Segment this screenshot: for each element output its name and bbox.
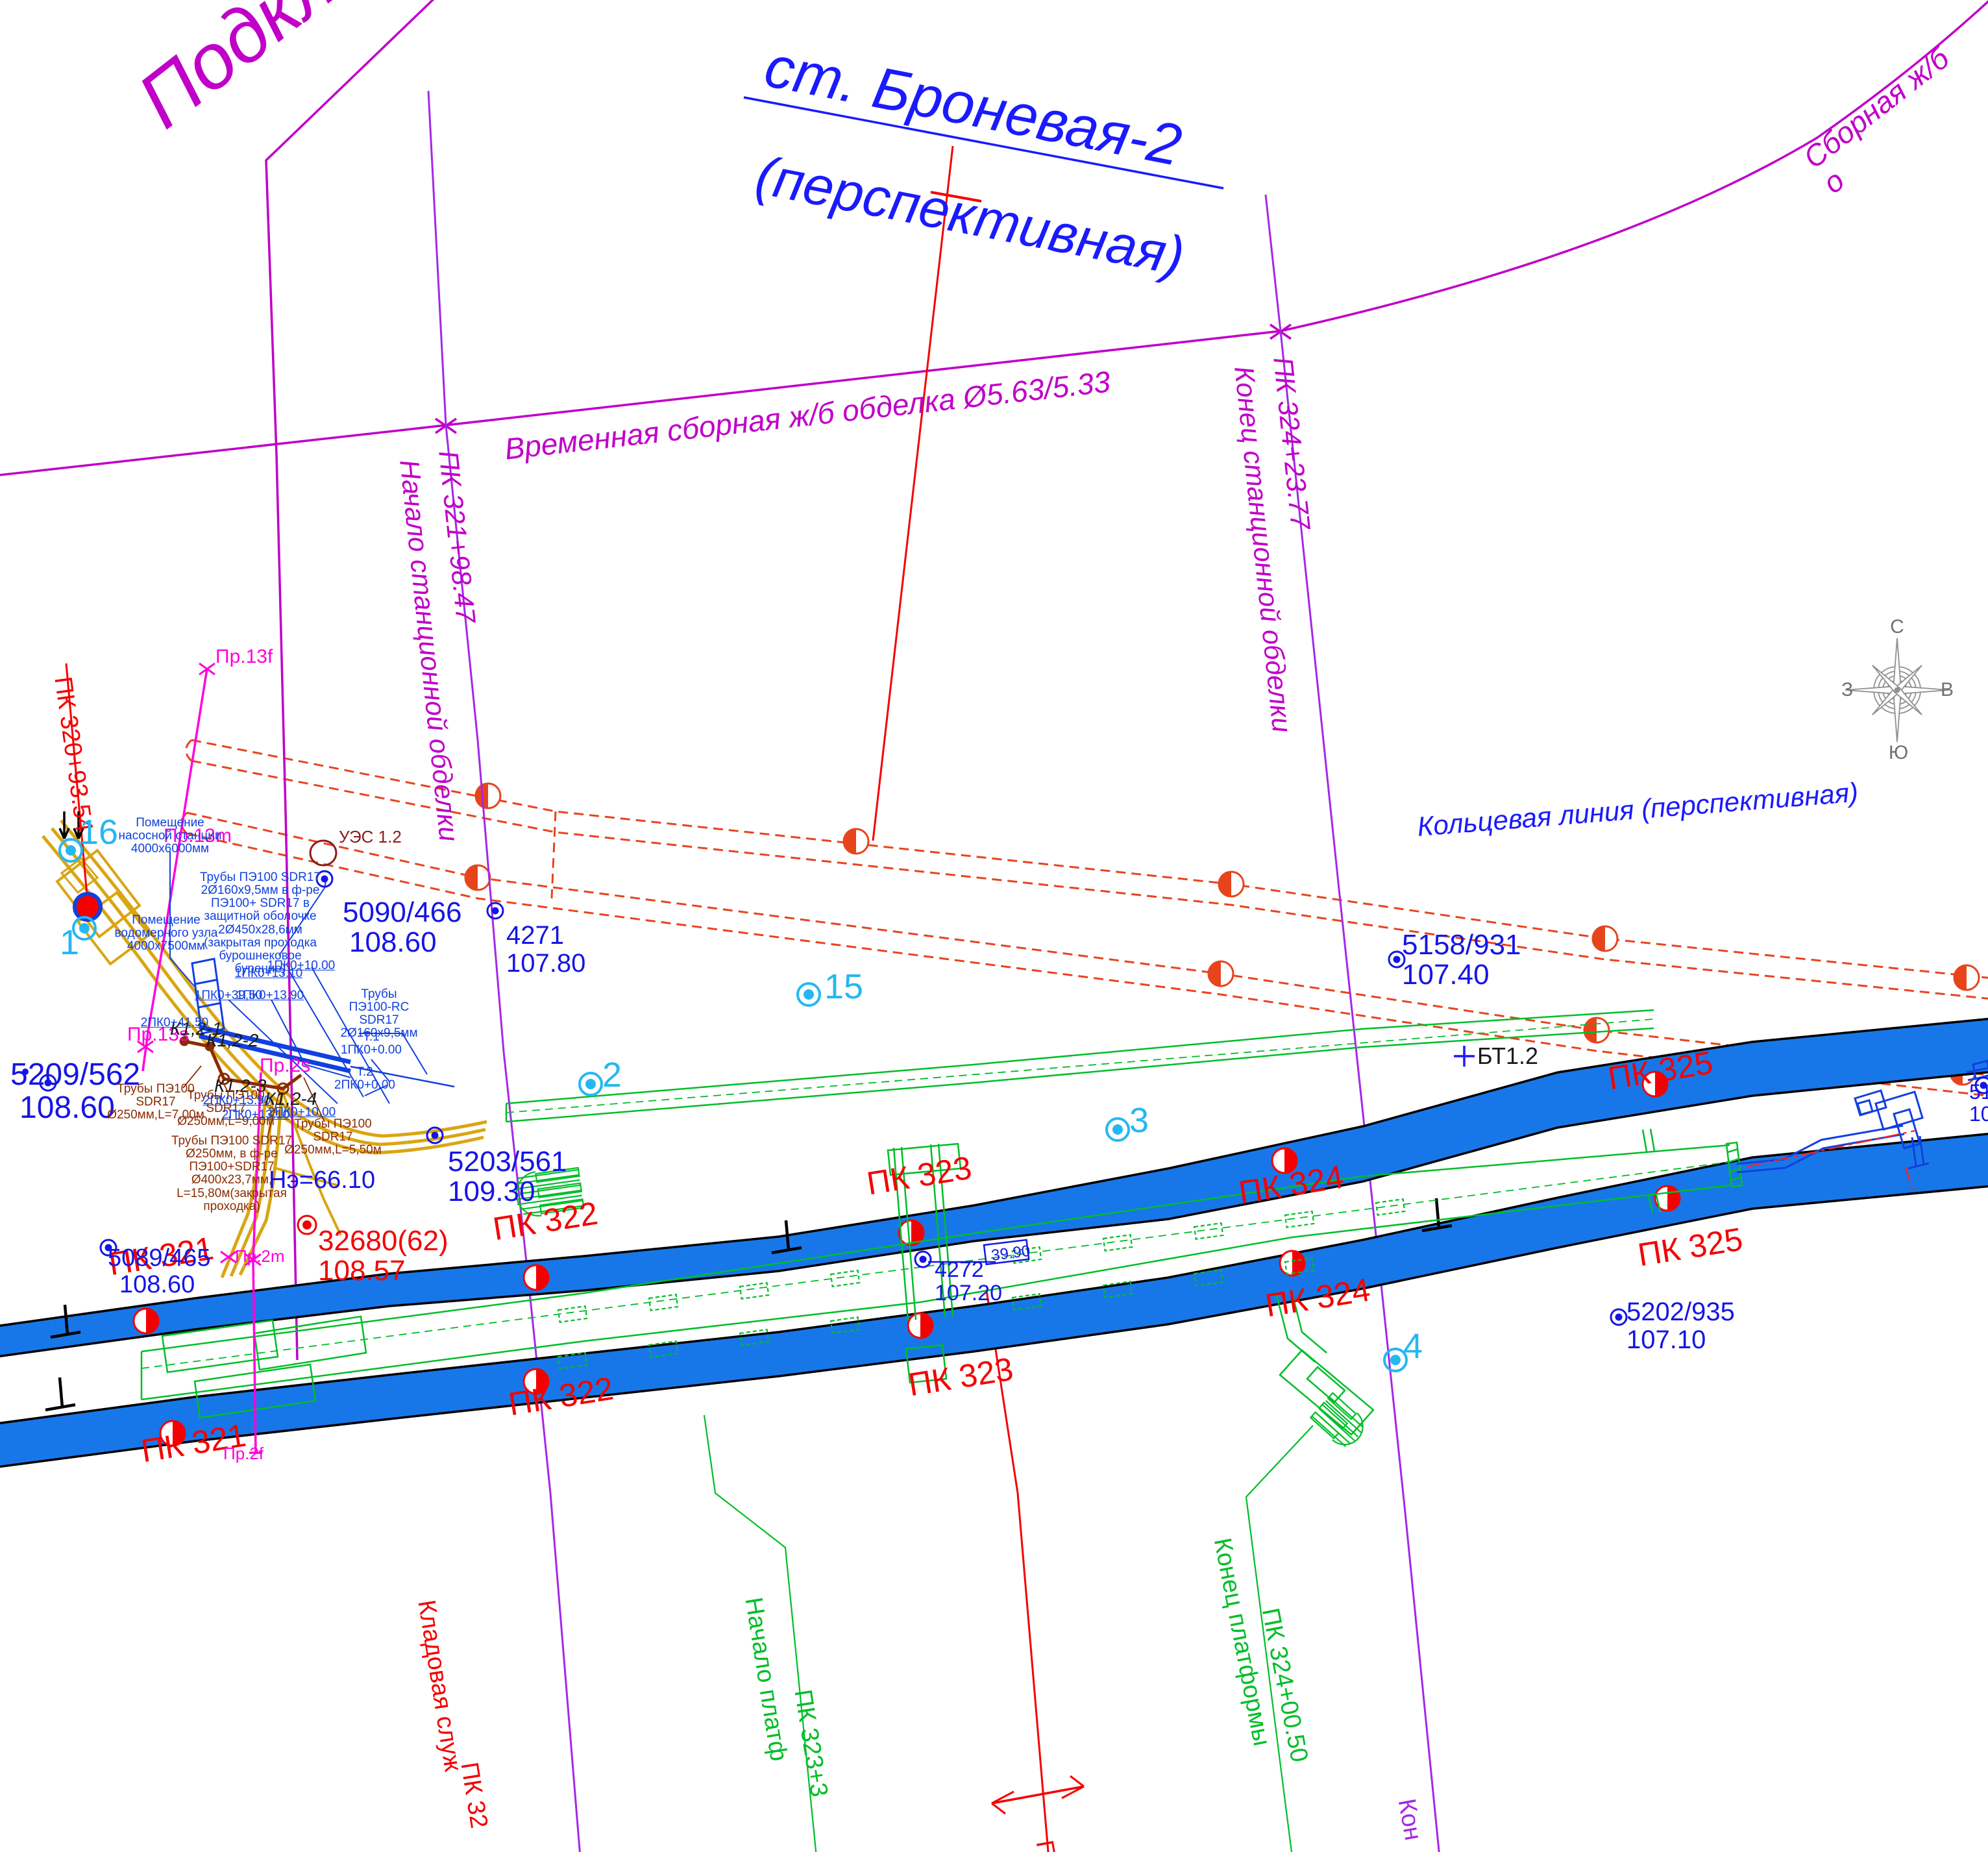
point-4: 4 [1403,1328,1423,1365]
tunnel-face-symbol [75,894,101,920]
red-survey-point [298,1216,316,1234]
pr13f: Пр.13f [215,647,273,667]
survey-32680: 32680(62)108.57 [318,1196,448,1287]
point-15: 15 [824,969,863,1006]
ues-label: УЭС 1.2 [339,828,402,846]
pr2s: Пр.2s [260,1056,310,1076]
survey-5203: 5203/561109.30 [448,1117,567,1207]
room-pump-note: Помещение насосной станции 4000х6000мм [119,817,222,856]
survey-4271: 4271107.80 [506,895,585,977]
bt-cross [1454,1046,1475,1067]
compass-north: С [1890,617,1904,637]
compass-east: В [1941,680,1954,700]
point-3: 3 [1129,1102,1149,1139]
sewer-k2: К1,2-2 [206,1031,258,1050]
pr2f: Пр.2f [223,1445,264,1463]
compass-rose [1845,638,1949,742]
callout-7: 2ПК0+10.00 [268,1106,336,1119]
point-1: 1 [60,924,79,961]
benchmark-label: БТ1.2 [1477,1044,1538,1068]
callout-5: 2ПК0+13.90 [203,1094,271,1107]
site-plan: ст. Броневая-2 (перспективная) Подклю Сб… [0,0,1988,1852]
sewer-note-closed: Трубы ПЭ100 SDR17 Ø250мм, в ф-ре ПЭ100+S… [171,1135,292,1213]
survey-edge-partial: 5110 [1969,1059,1988,1126]
survey-5089: 5089/465108.60 [108,1219,211,1298]
ring-line-benchmarks [465,784,1979,1085]
point-2: 2 [602,1057,622,1094]
escalator-exit-sw [1309,1392,1370,1451]
ues-symbol [310,841,336,865]
survey-5158: 5158/931107.40 [1402,900,1521,991]
compass-west: З [1841,680,1853,700]
t1-note: Т.1 1ПК0+0.00 [341,1031,402,1057]
point-16: 16 [79,814,118,851]
t2-note: Т.2 2ПК0+0.00 [334,1066,395,1092]
sewer-note-l55: Трубы ПЭ100 SDR17 Ø250мм,L=5,50м [284,1118,382,1157]
compass-south: Ю [1889,743,1908,763]
survey-5090: 5090/466108.60 [343,867,462,958]
callout-4: 2ПК0+41,50 [141,1017,209,1030]
callout-1: 1ПК0+10.00 [267,959,336,972]
callout-3: 1ПК0+13.90 [236,989,304,1002]
pr2m: Пр.2m [235,1248,285,1266]
survey-5202: 5202/935107.10 [1626,1271,1735,1353]
survey-4272: 4272107.20 [935,1235,1002,1305]
